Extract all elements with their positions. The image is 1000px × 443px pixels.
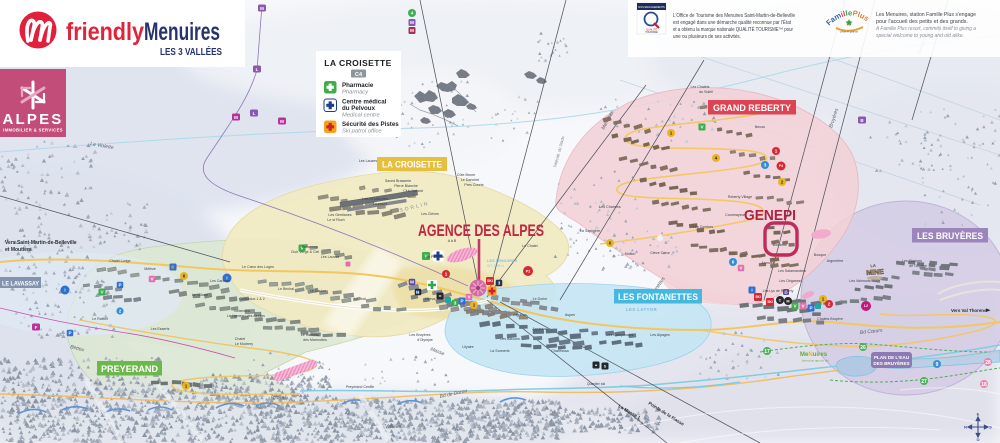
svg-text:Bétamora: Bétamora: [234, 309, 250, 313]
svg-text:Vers Saint-Martin-de-Bellevill: Vers Saint-Martin-de-Belleville: [5, 240, 77, 246]
svg-text:Les Balcons: Les Balcons: [500, 337, 520, 341]
svg-text:Chalet Lodge: Chalet Lodge: [109, 259, 130, 263]
svg-text:Le Bechal: Le Bechal: [278, 287, 294, 291]
svg-text:Les Lauzes: Les Lauzes: [359, 159, 378, 163]
svg-text:LES 3 VALLÉES: LES 3 VALLÉES: [160, 45, 222, 58]
svg-text:P: P: [460, 299, 463, 304]
svg-text:Le Cœur des Loges: Le Cœur des Loges: [242, 265, 274, 269]
svg-text:La Sonnerie: La Sonnerie: [490, 349, 509, 353]
svg-text:ALT. 1850 m: ALT. 1850 m: [487, 264, 504, 268]
svg-text:DES BRUYÈRES: DES BRUYÈRES: [873, 359, 909, 366]
svg-text:A Famille Plus resort, commits: A Famille Plus resort, commits itself to…: [875, 26, 976, 32]
svg-text:P: P: [68, 331, 71, 336]
svg-text:L'Office de Tourisme des Menui: L'Office de Tourisme des Menuires Saint-…: [673, 13, 795, 19]
svg-text:9: 9: [936, 362, 939, 368]
svg-text:TOURISME: TOURISME: [645, 31, 658, 34]
svg-text:1: 1: [445, 272, 448, 277]
svg-text:3: 3: [454, 301, 457, 306]
svg-text:Les Clèves: Les Clèves: [421, 212, 439, 216]
svg-text:Les Lys de Reberty: Les Lys de Reberty: [763, 289, 794, 293]
svg-text:P4: P4: [779, 164, 783, 168]
svg-text:Boedette: Boedette: [773, 243, 787, 247]
svg-text:Les Campanules: Les Campanules: [607, 333, 634, 337]
svg-text:est engagé dans une démarche q: est engagé dans une démarche qualité rec…: [673, 19, 792, 26]
svg-text:28: 28: [985, 360, 991, 366]
svg-text:Les Combes: Les Combes: [693, 225, 713, 229]
svg-text:Bouque: Bouque: [814, 253, 826, 257]
svg-text:AGENCE DES ALPES: AGENCE DES ALPES: [418, 222, 544, 240]
svg-text:Les Gentianes: Les Gentianes: [328, 213, 351, 217]
svg-text:des Marmottes: des Marmottes: [303, 338, 327, 342]
svg-text:Necou: Necou: [755, 125, 765, 129]
svg-text:C: C: [779, 298, 782, 302]
svg-text:27: 27: [921, 379, 927, 385]
svg-text:6: 6: [609, 241, 612, 246]
svg-text:Pierre Blanche: Pierre Blanche: [394, 184, 418, 188]
svg-text:Les Carlines: Les Carlines: [210, 279, 230, 283]
svg-text:Aspen: Aspen: [565, 313, 575, 317]
svg-text:LE LAVASSAY: LE LAVASSAY: [2, 280, 40, 287]
svg-text:2: 2: [781, 180, 784, 185]
svg-text:▲: ▲: [594, 363, 597, 367]
svg-text:Ski patrol office: Ski patrol office: [342, 129, 382, 135]
svg-text:P2: P2: [526, 269, 530, 273]
svg-text:N: N: [964, 425, 967, 430]
svg-text:Le Hameau: Le Hameau: [301, 333, 320, 337]
svg-text:Taupiaire: Taupiaire: [373, 202, 388, 206]
svg-text:Les Esserts: Les Esserts: [151, 327, 170, 331]
svg-text:S: S: [989, 425, 992, 430]
svg-text:🚻: 🚻: [416, 289, 421, 294]
svg-text:1: 1: [473, 303, 476, 308]
svg-text:M: M: [234, 115, 238, 120]
svg-text:17: 17: [764, 349, 770, 355]
svg-text:LA CROISETTE: LA CROISETTE: [324, 58, 392, 68]
svg-text:Le Chalet: Le Chalet: [522, 244, 537, 248]
svg-text:Sécurité des Pistes: Sécurité des Pistes: [342, 121, 399, 128]
svg-text:et a obtenu la marque national: et a obtenu la marque nationale QUALITÉ …: [673, 26, 793, 33]
svg-text:LA CROISETTE: LA CROISETTE: [382, 159, 442, 169]
svg-text:SKI: SKI: [767, 300, 772, 304]
svg-text:Vallées: Vallées: [385, 424, 402, 430]
svg-text:SKI: SKI: [755, 295, 760, 299]
svg-text:LES MENUIRES: LES MENUIRES: [487, 259, 518, 263]
svg-text:Le Doulon: Le Doulon: [310, 289, 326, 293]
svg-text:special welcome to young and o: special welcome to young and old alike.: [876, 33, 964, 39]
svg-text:MINE: MINE: [866, 269, 884, 277]
svg-text:Medical centre: Medical centre: [342, 113, 380, 119]
svg-text:Côte Brune: Côte Brune: [457, 173, 475, 177]
svg-text:L: L: [256, 67, 259, 72]
svg-text:Saved Brasserie: Saved Brasserie: [385, 179, 411, 183]
svg-text:Pharmacie: Pharmacie: [342, 82, 374, 89]
svg-text:Les Valmonts: Les Valmonts: [849, 279, 871, 283]
svg-text:Le Dorier: Le Dorier: [533, 297, 549, 301]
svg-text:friendly: friendly: [66, 18, 144, 46]
svg-text:2: 2: [828, 302, 831, 307]
svg-text:bien plus que du ski: bien plus que du ski: [802, 359, 829, 363]
svg-text:E: E: [977, 412, 980, 417]
svg-text:PREYERAND: PREYERAND: [101, 364, 158, 375]
svg-text:Les Chalets: Les Chalets: [691, 85, 710, 89]
svg-text:Lilyaire: Lilyaire: [462, 345, 473, 349]
svg-text:1: 1: [822, 297, 825, 302]
svg-text:Croiseaux 1 & 2: Croiseaux 1 & 2: [239, 297, 265, 301]
svg-text:LES BRUYÈRES: LES BRUYÈRES: [917, 231, 983, 242]
svg-text:Aiguilles: Aiguilles: [513, 313, 527, 317]
svg-text:M: M: [260, 6, 264, 11]
svg-text:M: M: [786, 299, 789, 303]
svg-text:4: 4: [715, 156, 718, 161]
svg-text:Chanrossa: Chanrossa: [551, 349, 568, 353]
svg-text:M: M: [410, 28, 414, 33]
svg-text:C4: C4: [355, 72, 363, 78]
svg-text:F: F: [35, 325, 38, 330]
svg-text:ALPES: ALPES: [2, 111, 63, 128]
svg-text:Boismenu: Boismenu: [302, 245, 318, 249]
svg-text:Chalets Bruyère: Chalets Bruyère: [817, 317, 843, 321]
svg-text:LES LATYOR: LES LATYOR: [626, 307, 657, 312]
svg-text:Crève Cœur: Crève Cœur: [650, 251, 671, 255]
svg-text:Les 24 Marches: Les 24 Marches: [362, 197, 388, 201]
svg-text:1: 1: [185, 384, 188, 389]
svg-text:6: 6: [732, 260, 735, 265]
svg-text:L2: L2: [864, 304, 868, 308]
svg-text:SKI: SKI: [487, 279, 493, 283]
svg-text:Argentière: Argentière: [827, 259, 844, 263]
svg-text:O: O: [976, 437, 979, 442]
svg-text:Maeva: Maeva: [425, 297, 436, 301]
svg-text:Club Nuland: Club Nuland: [403, 189, 423, 193]
svg-text:6: 6: [183, 274, 186, 279]
svg-text:Pres Courte: Pres Courte: [464, 183, 483, 187]
svg-text:1: 1: [670, 131, 673, 136]
svg-text:26: 26: [860, 345, 866, 351]
svg-text:18: 18: [981, 382, 987, 388]
svg-text:Les Salamandres: Les Salamandres: [778, 269, 806, 273]
svg-text:La Sapinière: La Sapinière: [580, 229, 600, 233]
svg-text:Armoise: Armoise: [761, 261, 774, 265]
svg-text:Le st Roch: Le st Roch: [327, 218, 344, 222]
svg-text:A à B: A à B: [448, 239, 457, 243]
svg-text:Pharmacy: Pharmacy: [342, 90, 369, 96]
svg-text:Reberty Village: Reberty Village: [728, 195, 752, 199]
svg-text:Le Mudrery: Le Mudrery: [235, 342, 253, 346]
svg-text:de l'Alpage: de l'Alpage: [909, 264, 927, 268]
svg-text:M: M: [280, 119, 284, 124]
svg-text:MeNuires: MeNuires: [800, 352, 828, 358]
svg-text:Le Villaret: Le Villaret: [192, 293, 208, 297]
svg-text:GRAND REBERTY: GRAND REBERTY: [713, 103, 792, 114]
svg-text:du Soleil: du Soleil: [699, 90, 713, 94]
svg-text:Le Hameau des Airelles: Le Hameau des Airelles: [227, 314, 265, 318]
svg-text:Vers Val Thorens: Vers Val Thorens: [951, 308, 987, 313]
svg-text:Menuires: Menuires: [144, 18, 220, 46]
svg-text:3: 3: [498, 281, 501, 286]
svg-text:Les Lauves: Les Lauves: [321, 255, 340, 259]
svg-text:Les Charmes: Les Charmes: [599, 205, 621, 209]
svg-text:NOS ENGAGEMENTS: NOS ENGAGEMENTS: [638, 5, 665, 9]
svg-text:Mofion: Mofion: [625, 252, 636, 256]
svg-text:P: P: [118, 283, 121, 288]
svg-text:i: i: [64, 288, 65, 293]
svg-text:Les Origanes: Les Origanes: [779, 279, 801, 283]
svg-text:4: 4: [411, 11, 414, 16]
svg-text:petits et grands: petits et grands: [840, 30, 858, 34]
svg-text:Les Clarines: Les Clarines: [902, 259, 922, 263]
svg-text:2: 2: [119, 309, 122, 314]
svg-text:Chalet: Chalet: [235, 337, 245, 341]
svg-text:Le Raffort: Le Raffort: [92, 317, 108, 321]
svg-text:M: M: [410, 20, 414, 25]
svg-text:LA: LA: [870, 263, 876, 269]
svg-text:PLAN DE L'EAU: PLAN DE L'EAU: [874, 355, 910, 360]
svg-text:Les Bruyères: Les Bruyères: [409, 333, 430, 337]
svg-text:i: i: [751, 288, 752, 293]
svg-text:Le Teal: Le Teal: [354, 297, 366, 301]
svg-text:🔒: 🔒: [171, 265, 175, 269]
svg-text:Courmayeur: Courmayeur: [725, 213, 746, 217]
svg-text:Club Verge & Ciel: Club Verge & Ciel: [291, 250, 320, 254]
svg-text:Les Menuires, station Famille: Les Menuires, station Famille Plus s'eng…: [876, 12, 976, 18]
svg-text:Preyerand Centre: Preyerand Centre: [346, 385, 374, 389]
svg-text:Mélèze: Mélèze: [144, 267, 156, 271]
svg-text:Le Danchet: Le Danchet: [461, 178, 479, 182]
svg-text:et Moutiers: et Moutiers: [5, 247, 32, 253]
svg-text:P: P: [809, 306, 812, 311]
svg-text:1: 1: [775, 149, 778, 154]
svg-text:une ou plusieurs de ses activi: une ou plusieurs de ses activités.: [673, 34, 741, 40]
svg-text:IMMOBILIER & SERVICES: IMMOBILIER & SERVICES: [3, 128, 63, 133]
svg-text:Arpasson: Arpasson: [532, 327, 547, 331]
svg-text:pour l'accueil des petits et d: pour l'accueil des petits et des grands.: [876, 19, 968, 25]
svg-text:L: L: [253, 111, 256, 116]
svg-text:Quartier ski: Quartier ski: [587, 382, 606, 386]
svg-text:Le Pelvoux: Le Pelvoux: [426, 255, 444, 259]
svg-text:LES FONTANETTES: LES FONTANETTES: [618, 292, 698, 302]
svg-text:d'Olympie: d'Olympie: [417, 338, 433, 342]
svg-text:3: 3: [764, 163, 767, 168]
svg-text:M: M: [410, 280, 414, 285]
svg-text:Les Alpages: Les Alpages: [650, 333, 670, 337]
svg-text:du Pelvoux: du Pelvoux: [342, 105, 376, 112]
